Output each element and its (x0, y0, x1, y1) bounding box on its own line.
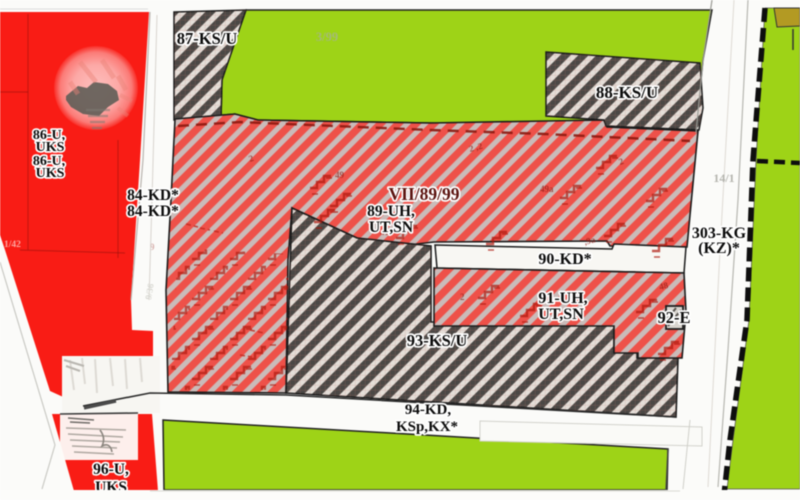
svg-text:UKS: UKS (36, 166, 65, 181)
svg-text:90-KD*: 90-KD* (538, 251, 591, 268)
svg-text:92-E: 92-E (658, 308, 691, 327)
svg-text:UT,SN: UT,SN (538, 306, 584, 323)
svg-text:UKS: UKS (36, 140, 65, 155)
svg-text:2: 2 (460, 292, 465, 302)
svg-text:3/99: 3/99 (316, 30, 338, 44)
svg-text:14/1: 14/1 (713, 171, 734, 185)
svg-text:89-UH,: 89-UH, (367, 203, 415, 220)
svg-text:87-KS/U: 87-KS/U (177, 29, 238, 48)
svg-text:KSp,KX*: KSp,KX* (396, 419, 458, 435)
svg-text:94-KD,: 94-KD, (405, 402, 451, 418)
svg-text:96-U,: 96-U, (93, 461, 129, 478)
svg-text:49a: 49a (540, 184, 554, 194)
svg-text:93-KS/U: 93-KS/U (407, 331, 468, 350)
svg-text:UT,SN: UT,SN (369, 219, 413, 236)
svg-text:84-KD*: 84-KD* (127, 187, 179, 204)
svg-text:88-KS/U: 88-KS/U (596, 83, 658, 102)
svg-text:49: 49 (335, 170, 345, 180)
svg-text:84-KD*: 84-KD* (127, 203, 179, 220)
svg-text:1/42: 1/42 (4, 240, 21, 250)
svg-text:(KZ)*: (KZ)* (698, 240, 740, 257)
svg-text:91-UH,: 91-UH, (538, 290, 587, 307)
svg-text:VII/89/99: VII/89/99 (389, 184, 460, 204)
